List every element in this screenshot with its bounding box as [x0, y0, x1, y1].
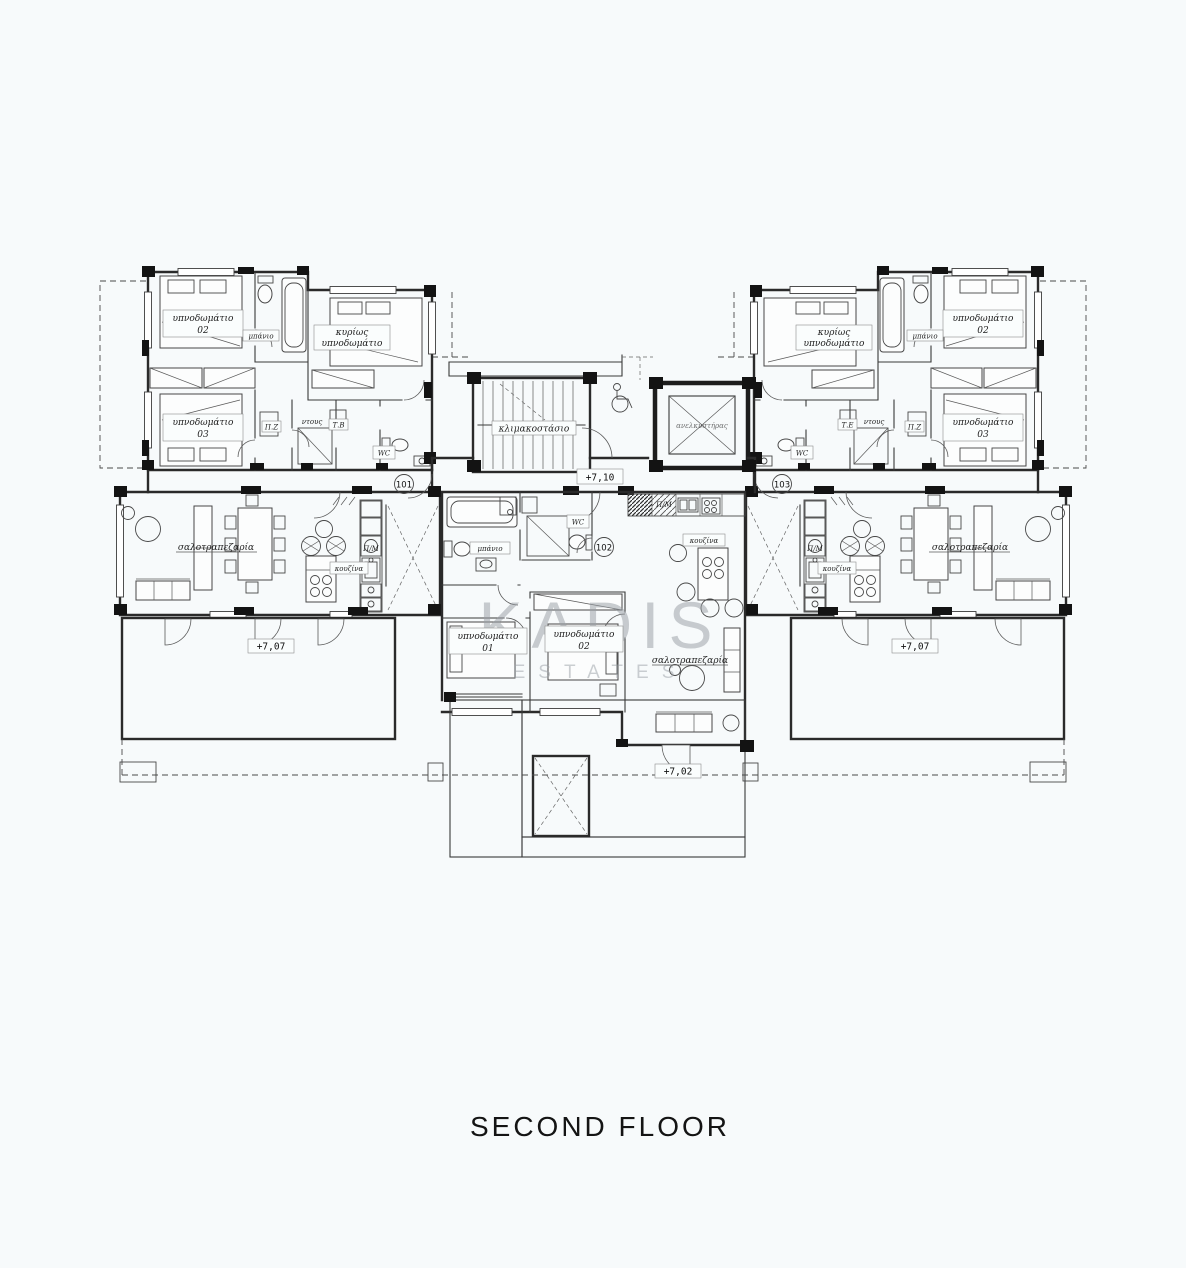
- room-label-shower: ντους: [864, 418, 885, 426]
- closet-label-pz: Π.Ζ: [264, 424, 278, 432]
- room-label-bathroom: μπάνιο: [477, 545, 502, 553]
- room-label-master-1: κυρίως: [335, 327, 370, 338]
- room-label-living: σαλοτραπεζαρία: [932, 542, 1008, 553]
- room-label-bedroom: υπνοδωμάτιο: [953, 313, 1014, 324]
- unit-badge-103: 103: [774, 481, 790, 491]
- closet-label-pz: Π.Ζ: [907, 424, 921, 432]
- room-label-bathroom: μπάνιο: [912, 333, 937, 341]
- floor-plan-page: KADIS ESTATES υπνοδωμάτιο 02 μπάνιο κυρί…: [0, 0, 1186, 1268]
- room-number: 02: [197, 326, 209, 336]
- room-label-living: σαλοτραπεζαρία: [652, 655, 728, 666]
- room-label-kitchen: κουζίνα: [689, 536, 719, 545]
- staircase-label: κλιμακοστάσιο: [498, 424, 570, 435]
- level-marker-balcony-left: +7,07: [257, 642, 286, 653]
- room-label-wc: WC: [378, 450, 391, 458]
- page-title: SECOND FLOOR: [470, 1111, 730, 1142]
- room-label-kitchen: κουζίνα: [334, 564, 364, 573]
- room-label-bathroom: μπάνιο: [248, 333, 273, 341]
- room-label-bedroom: υπνοδωμάτιο: [173, 313, 234, 324]
- room-number: 02: [977, 326, 989, 336]
- level-marker-balcony-right: +7,07: [901, 642, 930, 653]
- appliance-label-washer: Π/Μ: [655, 501, 672, 509]
- closet-label-te: Τ.Ε: [841, 422, 853, 430]
- room-label-wc: WC: [796, 450, 809, 458]
- level-marker-balcony-center: +7,02: [664, 767, 693, 778]
- elevator-label: ανελκυστήρας: [676, 422, 728, 430]
- level-marker-core: +7,10: [586, 473, 615, 484]
- closet-label-tb: Τ.Β: [332, 422, 344, 430]
- room-label-bedroom: υπνοδωμάτιο: [953, 417, 1014, 428]
- room-label-kitchen: κουζίνα: [822, 564, 852, 573]
- room-number: 03: [977, 430, 989, 440]
- room-label-master-1: κυρίως: [817, 327, 852, 338]
- unit-badge-102: 102: [596, 544, 612, 554]
- room-label-bedroom: υπνοδωμάτιο: [458, 631, 519, 642]
- room-number: 02: [578, 642, 590, 652]
- room-label-shower: ντους: [302, 418, 323, 426]
- room-label-bedroom: υπνοδωμάτιο: [173, 417, 234, 428]
- room-label-master-2: υπνοδωμάτιο: [322, 338, 383, 349]
- appliance-label-washer: Π/Μ: [362, 545, 379, 553]
- floor-plan-drawing: KADIS ESTATES υπνοδωμάτιο 02 μπάνιο κυρί…: [0, 0, 1186, 1268]
- room-label-living: σαλοτραπεζαρία: [178, 542, 254, 553]
- room-label-master-2: υπνοδωμάτιο: [804, 338, 865, 349]
- room-number: 03: [197, 430, 209, 440]
- room-label-wc: WC: [572, 519, 585, 527]
- unit-badge-101: 101: [396, 481, 412, 491]
- appliance-label-washer: Π/Μ: [806, 545, 823, 553]
- room-label-bedroom: υπνοδωμάτιο: [554, 629, 615, 640]
- room-number: 01: [482, 644, 493, 654]
